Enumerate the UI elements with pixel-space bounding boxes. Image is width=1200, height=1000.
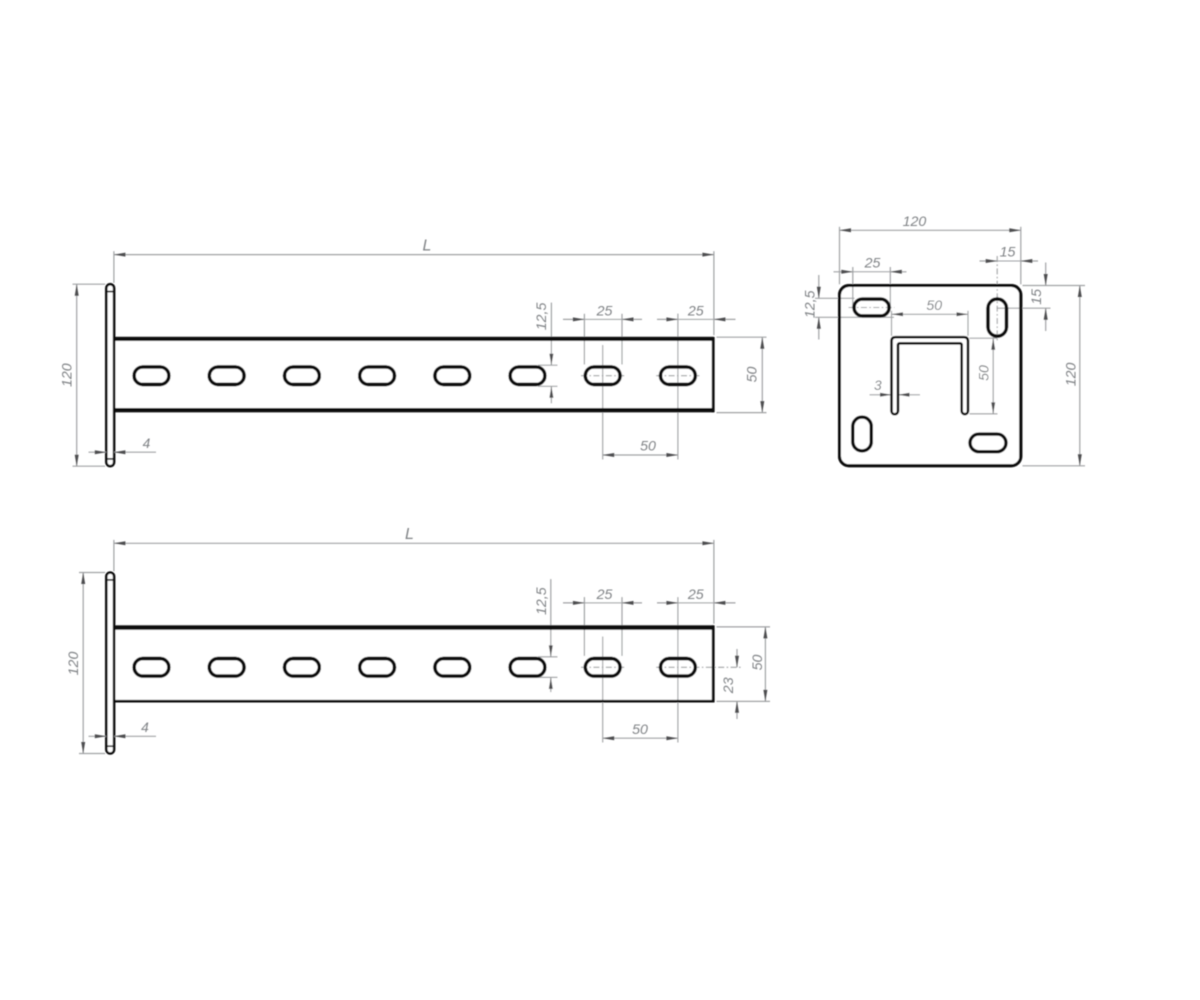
svg-text:12,5: 12,5	[534, 302, 550, 330]
svg-text:4: 4	[143, 436, 151, 451]
svg-text:12,5: 12,5	[534, 587, 550, 615]
svg-text:L: L	[423, 238, 432, 255]
svg-text:L: L	[405, 526, 414, 543]
svg-text:120: 120	[66, 652, 82, 676]
svg-text:120: 120	[60, 363, 76, 387]
svg-text:50: 50	[640, 439, 656, 455]
svg-text:23: 23	[721, 677, 737, 694]
svg-text:25: 25	[596, 303, 613, 319]
svg-text:25: 25	[687, 303, 704, 319]
svg-text:50: 50	[750, 655, 766, 671]
svg-text:15: 15	[1000, 244, 1016, 260]
svg-text:4: 4	[141, 720, 149, 735]
svg-text:3: 3	[874, 378, 882, 393]
svg-text:50: 50	[632, 722, 648, 738]
svg-text:25: 25	[864, 255, 881, 271]
svg-text:25: 25	[596, 587, 613, 603]
svg-text:120: 120	[903, 214, 927, 230]
svg-text:15: 15	[1029, 289, 1045, 305]
svg-text:50: 50	[926, 298, 942, 314]
svg-text:120: 120	[1063, 362, 1079, 386]
svg-text:25: 25	[687, 587, 704, 603]
svg-text:12,5: 12,5	[803, 290, 819, 318]
svg-text:50: 50	[744, 367, 760, 383]
svg-text:50: 50	[977, 365, 993, 381]
